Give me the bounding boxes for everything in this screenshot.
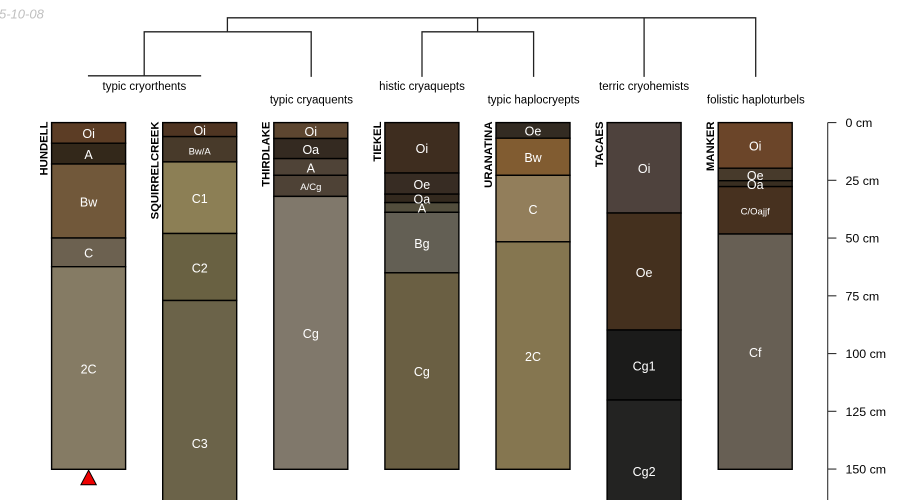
svg-text:SQUIRRELCREEK: SQUIRRELCREEK — [150, 121, 162, 220]
svg-text:Bg: Bg — [414, 237, 429, 251]
svg-text:Oe: Oe — [414, 178, 431, 192]
svg-text:25 cm: 25 cm — [846, 174, 880, 188]
svg-text:TACAES: TACAES — [594, 121, 606, 167]
svg-text:C/Oajjf: C/Oajjf — [741, 207, 770, 218]
svg-text:URANATINA: URANATINA — [483, 122, 495, 188]
svg-text:MANKER: MANKER — [705, 122, 717, 172]
svg-text:Cg2: Cg2 — [633, 465, 656, 479]
svg-text:typic cryorthents: typic cryorthents — [103, 81, 187, 93]
svg-text:A: A — [418, 202, 427, 216]
svg-text:Oi: Oi — [305, 125, 318, 139]
svg-text:Bw/A: Bw/A — [189, 147, 212, 158]
svg-text:histic cryaquepts: histic cryaquepts — [379, 81, 465, 93]
svg-text:typic cryaquents: typic cryaquents — [270, 95, 353, 107]
svg-text:A/Cg: A/Cg — [300, 182, 321, 193]
svg-text:A: A — [84, 148, 93, 162]
svg-text:125 cm: 125 cm — [846, 405, 887, 419]
svg-text:0 cm: 0 cm — [846, 116, 873, 130]
svg-text:Oi: Oi — [749, 140, 762, 154]
svg-text:Cg: Cg — [303, 327, 319, 341]
svg-text:Cf: Cf — [749, 346, 762, 360]
svg-text:folistic haploturbels: folistic haploturbels — [707, 95, 805, 107]
svg-text:Oe: Oe — [525, 125, 542, 139]
svg-text:Cg: Cg — [414, 365, 430, 379]
svg-text:C1: C1 — [192, 192, 208, 206]
svg-text:TIEKEL: TIEKEL — [372, 121, 384, 161]
svg-text:C: C — [528, 203, 537, 217]
svg-text:A: A — [307, 161, 316, 175]
svg-text:Bw: Bw — [524, 151, 542, 165]
svg-text:5-10-08: 5-10-08 — [0, 7, 45, 22]
svg-text:Cg1: Cg1 — [633, 359, 656, 373]
svg-text:C3: C3 — [192, 437, 208, 451]
svg-text:C2: C2 — [192, 261, 208, 275]
svg-text:2C: 2C — [525, 350, 541, 364]
svg-text:Oa: Oa — [747, 178, 764, 192]
svg-text:Oi: Oi — [638, 162, 651, 176]
svg-text:Oa: Oa — [302, 143, 319, 157]
svg-text:2C: 2C — [81, 362, 97, 376]
svg-text:terric cryohemists: terric cryohemists — [599, 81, 689, 93]
svg-text:Oi: Oi — [416, 142, 429, 156]
svg-text:Bw: Bw — [80, 195, 98, 209]
svg-text:C: C — [84, 247, 93, 261]
svg-text:Oi: Oi — [193, 124, 206, 138]
svg-text:75 cm: 75 cm — [846, 289, 880, 303]
svg-text:50 cm: 50 cm — [846, 232, 880, 246]
svg-text:Oe: Oe — [636, 266, 653, 280]
svg-text:150 cm: 150 cm — [846, 463, 887, 477]
svg-text:100 cm: 100 cm — [846, 347, 887, 361]
svg-text:THIRDLAKE: THIRDLAKE — [261, 121, 273, 187]
svg-text:Oi: Oi — [82, 127, 95, 141]
svg-text:typic haplocryepts: typic haplocryepts — [488, 95, 580, 107]
svg-text:HUNDELL: HUNDELL — [39, 121, 51, 175]
